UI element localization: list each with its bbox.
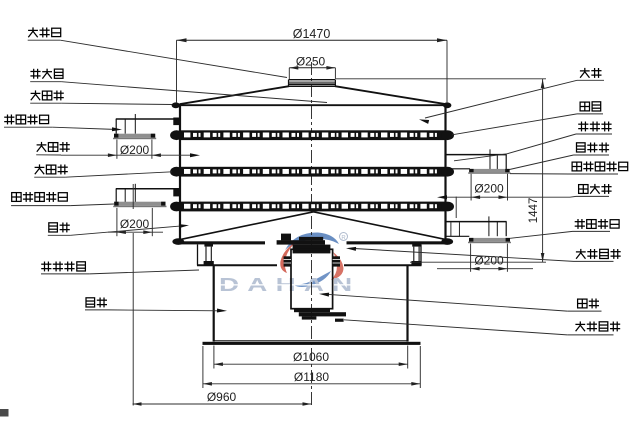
svg-text:R: R bbox=[341, 235, 346, 241]
svg-text:Ø1060: Ø1060 bbox=[293, 350, 329, 364]
svg-text:Ø200: Ø200 bbox=[474, 182, 504, 196]
svg-text:Ø1180: Ø1180 bbox=[294, 370, 329, 384]
svg-text:Ø200: Ø200 bbox=[120, 143, 150, 157]
svg-text:Ø250: Ø250 bbox=[296, 54, 326, 68]
svg-text:1447: 1447 bbox=[528, 198, 540, 224]
svg-text:Ø960: Ø960 bbox=[207, 390, 237, 404]
svg-text:Ø1470: Ø1470 bbox=[293, 27, 331, 41]
